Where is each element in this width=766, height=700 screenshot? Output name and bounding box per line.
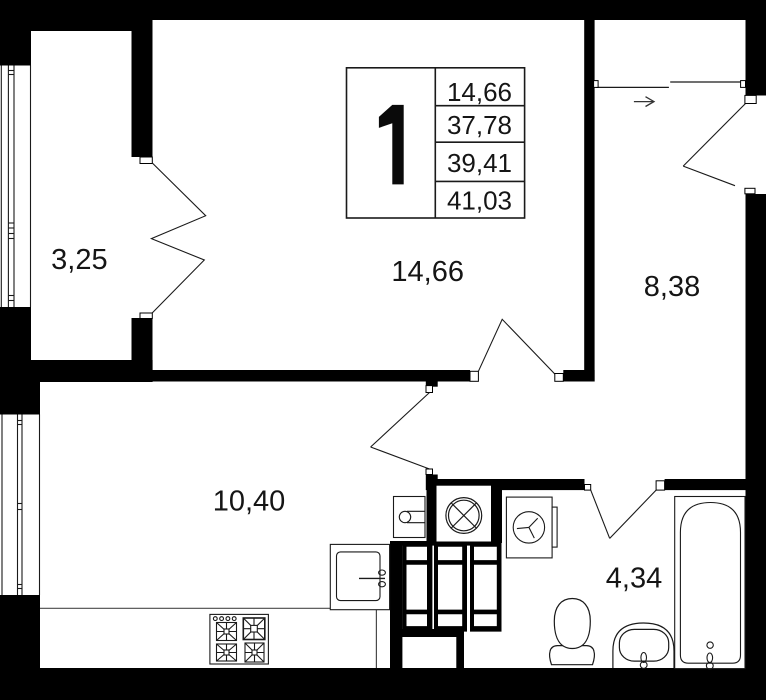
svg-text:41,03: 41,03 [447,186,512,216]
svg-text:4,34: 4,34 [606,563,662,595]
svg-text:10,40: 10,40 [213,486,286,518]
svg-text:3,25: 3,25 [51,244,107,276]
svg-text:8,38: 8,38 [644,271,700,303]
svg-text:14,66: 14,66 [391,256,464,288]
svg-text:39,41: 39,41 [447,148,512,178]
svg-text:14,66: 14,66 [447,77,512,107]
svg-text:37,78: 37,78 [447,110,512,140]
